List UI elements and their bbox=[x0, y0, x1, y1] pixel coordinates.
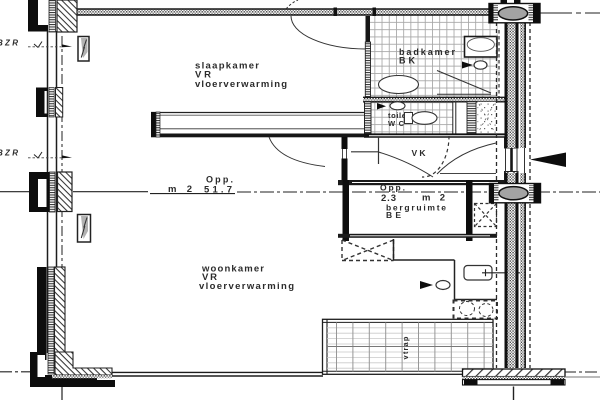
svg-text:vloerverwarming: vloerverwarming bbox=[195, 79, 287, 90]
svg-text:BZR: BZR bbox=[0, 39, 18, 48]
svg-text:BZR: BZR bbox=[0, 149, 18, 158]
svg-text:badkamer: badkamer bbox=[399, 47, 455, 57]
svg-text:vtrap: vtrap bbox=[401, 336, 410, 359]
svg-text:VK: VK bbox=[412, 148, 427, 158]
